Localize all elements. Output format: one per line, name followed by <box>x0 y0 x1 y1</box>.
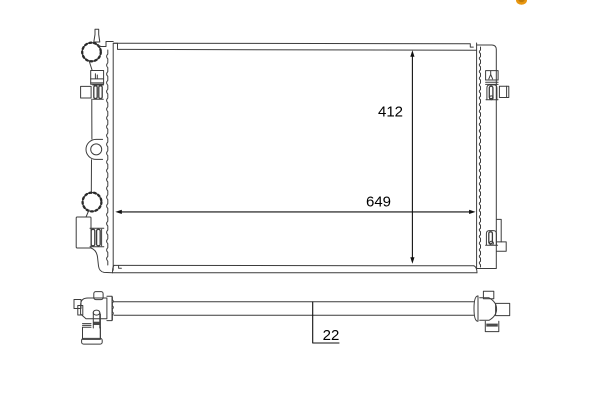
svg-text:22: 22 <box>323 327 340 344</box>
svg-text:412: 412 <box>378 104 403 121</box>
svg-text:649: 649 <box>366 194 391 211</box>
